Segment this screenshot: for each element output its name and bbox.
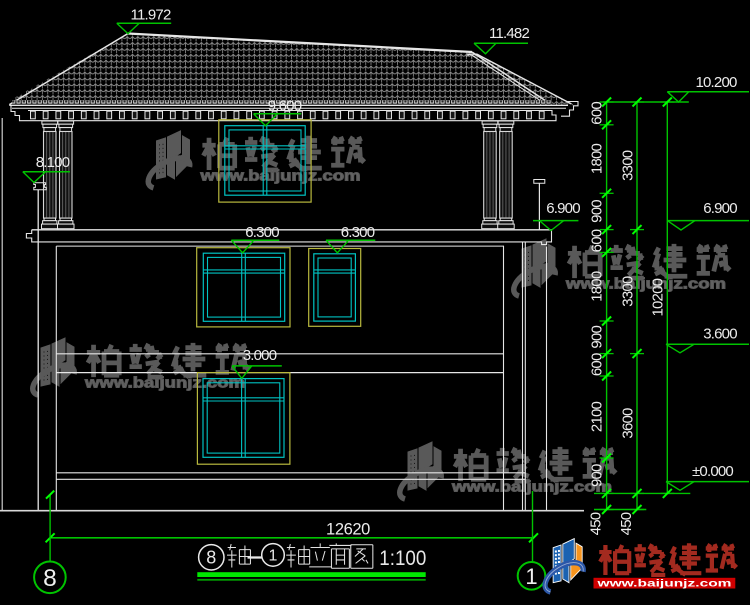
svg-text:6.300: 6.300 (245, 224, 279, 241)
svg-text:www.baijunjz.com: www.baijunjz.com (199, 168, 360, 184)
svg-text:1800: 1800 (589, 271, 606, 302)
svg-text:6.900: 6.900 (546, 200, 580, 217)
svg-text:9.600: 9.600 (268, 97, 302, 114)
svg-text:11.482: 11.482 (489, 25, 529, 42)
svg-text:600: 600 (589, 229, 606, 252)
svg-text:8: 8 (43, 565, 57, 592)
svg-text:10200: 10200 (650, 278, 667, 316)
svg-text:3300: 3300 (620, 150, 637, 181)
svg-text:www.baijunjz.com: www.baijunjz.com (84, 376, 245, 392)
svg-text:1: 1 (269, 548, 278, 565)
svg-text:3600: 3600 (620, 408, 637, 439)
svg-text:900: 900 (589, 464, 606, 487)
svg-text:450: 450 (618, 512, 635, 535)
svg-text:10.200: 10.200 (695, 74, 737, 91)
svg-text:8: 8 (206, 548, 216, 568)
svg-text:600: 600 (589, 102, 606, 125)
svg-text:2100: 2100 (589, 401, 606, 432)
svg-text:600: 600 (589, 353, 606, 376)
svg-text:900: 900 (589, 326, 606, 349)
svg-text:8.100: 8.100 (36, 154, 70, 171)
svg-text:±0.000: ±0.000 (692, 463, 733, 480)
svg-text:1: 1 (525, 564, 537, 589)
svg-text:1:100: 1:100 (379, 546, 426, 570)
svg-text:www.baijunjz.com: www.baijunjz.com (596, 578, 731, 590)
svg-text:3.000: 3.000 (243, 347, 277, 364)
svg-text:450: 450 (588, 512, 605, 535)
svg-text:3.600: 3.600 (703, 326, 737, 343)
svg-text:12620: 12620 (326, 521, 370, 539)
svg-text:900: 900 (589, 200, 606, 223)
svg-text:6.900: 6.900 (703, 200, 737, 217)
svg-text:6.300: 6.300 (341, 224, 375, 241)
svg-text:11.972: 11.972 (131, 7, 171, 24)
svg-text:1800: 1800 (589, 143, 606, 174)
svg-text:3300: 3300 (620, 276, 637, 307)
